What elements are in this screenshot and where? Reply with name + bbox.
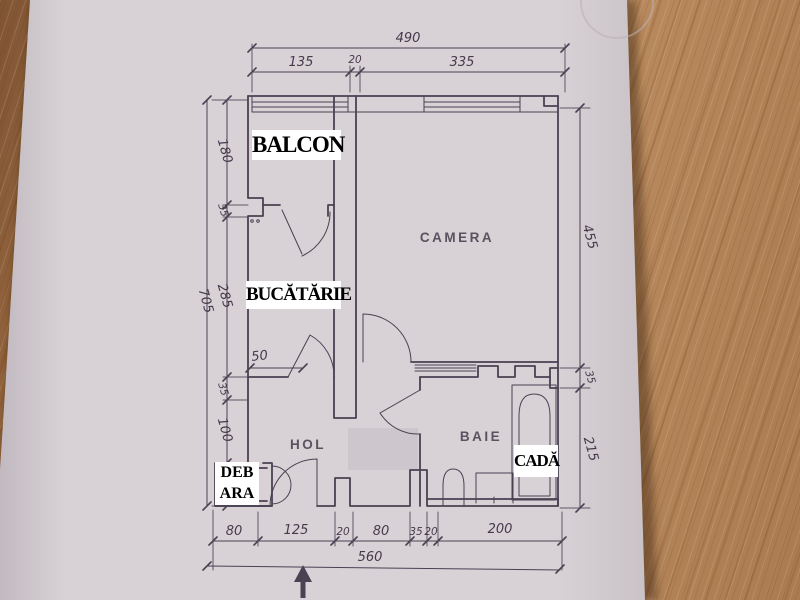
- room-label-debara-line2: ARA: [220, 485, 255, 502]
- dim-bottom-200: 200: [488, 522, 513, 537]
- dim-kitchen-50: 50: [251, 348, 269, 365]
- floorplan-photo: 490 135 20 335 705 180 35 285 35 100 70 …: [0, 0, 800, 600]
- dim-bottom-80a: 80: [226, 524, 243, 539]
- dim-bottom-125: 125: [284, 523, 309, 538]
- dim-bottom-80b: 80: [373, 524, 390, 539]
- dim-top-20: 20: [348, 54, 362, 66]
- room-label-cada: CADĂ: [514, 445, 558, 477]
- dim-bottom-20b: 20: [424, 526, 438, 538]
- room-label-hol: HOL: [290, 437, 326, 452]
- room-label-debara: DEBARA: [215, 462, 259, 505]
- dim-bottom-20a: 20: [336, 526, 350, 538]
- dim-top-335: 335: [450, 55, 475, 70]
- room-label-balcon: BALCON: [252, 130, 341, 160]
- room-label-baie: BAIE: [460, 429, 502, 444]
- dim-bottom-35: 35: [409, 526, 423, 538]
- photo-of-floor-plan: { "rooms": { "balcon": "BALCON", "bucata…: [0, 0, 800, 600]
- dim-top-135: 135: [289, 55, 314, 70]
- room-label-bucatarie: BUCĂTĂRIE: [246, 281, 341, 309]
- eraser-smudge: [348, 428, 418, 470]
- dim-top-total: 490: [396, 31, 421, 46]
- dim-bottom-total: 560: [358, 550, 383, 565]
- room-label-debara-line1: DEB: [221, 464, 254, 481]
- room-label-camera: CAMERA: [420, 230, 494, 245]
